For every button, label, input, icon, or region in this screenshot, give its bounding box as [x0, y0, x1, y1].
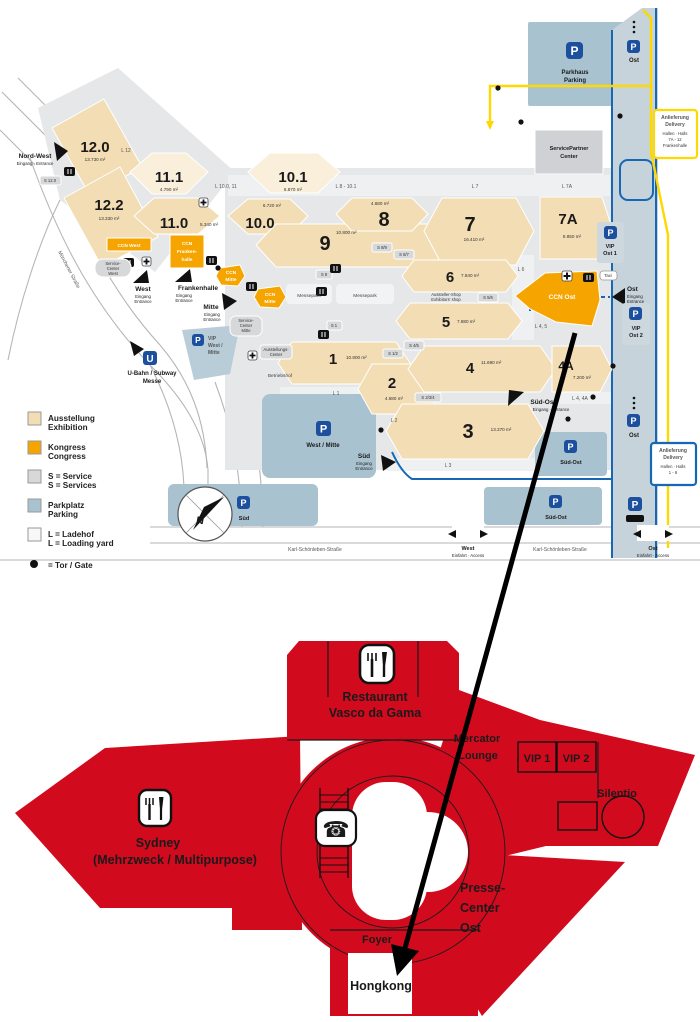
vip-ost-2-sign: P VIP Ost 2 — [622, 303, 650, 345]
loading-swatch — [28, 528, 41, 541]
svg-text:S 1/2: S 1/2 — [388, 351, 398, 356]
ubahn: U U-Bahn / Subway Messe — [127, 341, 177, 385]
ubahn-label-1: U-Bahn / Subway — [127, 371, 177, 377]
svg-text:Entrance: Entrance — [203, 317, 221, 322]
svg-text:P: P — [632, 500, 639, 511]
svg-text:Ost 1: Ost 1 — [603, 251, 617, 257]
ost-parking-bottom: P — [626, 497, 644, 522]
svg-text:Einfahrt · Access: Einfahrt · Access — [637, 553, 669, 558]
legend-exhibition: Ausstellung Exhibition — [28, 412, 95, 432]
ccn-mitte-1-l1: CCN — [226, 270, 237, 276]
taxi-sign: Taxi — [600, 271, 617, 280]
legend: Ausstellung Exhibition Kongress Congress… — [28, 412, 114, 570]
room-restaurant-label-2: Vasco da Gama — [329, 706, 422, 720]
svg-text:Taxi: Taxi — [604, 273, 612, 278]
l7a: L 7A — [562, 184, 573, 190]
hall-6-area: 7.840 m² — [461, 273, 480, 278]
ccn-mitte-2-l2: Mitte — [264, 299, 276, 305]
hall-12.0-area: 13.730 m² — [85, 157, 106, 162]
hall-4A-area: 7.200 m² — [573, 375, 592, 380]
svg-text:Ost: Ost — [648, 546, 657, 552]
messepark-2: Messepark — [353, 293, 377, 299]
hall-10.1-label: 10.1 — [278, 169, 307, 186]
room-presse-label-3: Ost — [460, 921, 482, 935]
gate-icon — [30, 560, 38, 568]
svg-text:Nord-West: Nord-West — [19, 153, 53, 160]
room-presse-label-1: Presse- — [460, 881, 505, 895]
hall-7A-area: 8.850 m² — [563, 234, 582, 239]
hall-7-area: 16.410 m² — [464, 237, 485, 242]
svg-text:Süd: Süd — [239, 516, 249, 522]
service-center-mitte: Service- Center Mitte — [230, 316, 262, 336]
svg-text:Entrance: Entrance — [134, 299, 152, 304]
svg-text:S 12.0: S 12.0 — [44, 178, 57, 183]
hall-2-label: 2 — [388, 375, 396, 392]
aussteller-shop-l2: Exhibitors' shop — [431, 297, 461, 302]
room-presse-label-2: Center — [460, 901, 500, 915]
l8: L 8 - 10.1 — [336, 184, 357, 190]
svg-text:Mitte: Mitte — [208, 350, 220, 356]
access-west: West Einfahrt · Access — [448, 525, 488, 558]
hall-12.0-label: 12.0 — [80, 139, 109, 156]
svg-text:Eingang · Entrance: Eingang · Entrance — [17, 161, 54, 166]
hall-4-area: 11.690 m² — [481, 360, 502, 365]
congress-swatch — [28, 441, 41, 454]
svg-text:Einfahrt · Access: Einfahrt · Access — [452, 553, 484, 558]
messepark-1: Messepark — [297, 293, 321, 299]
service-center-west: Service- Center West — [95, 259, 131, 277]
hall-6-label: 6 — [446, 269, 454, 286]
service-point-s56: S 5/6 — [478, 293, 498, 302]
room-sydney-label-1: Sydney — [136, 836, 181, 850]
hall-3-area: 13.370 m² — [491, 427, 512, 432]
svg-text:Congress: Congress — [48, 452, 86, 461]
svg-text:S 6/7: S 6/7 — [399, 252, 409, 257]
hall-8-label: 8 — [378, 209, 389, 231]
room-silentio-circle — [602, 796, 644, 838]
svg-text:Entrance: Entrance — [355, 466, 373, 471]
svg-text:Frankenhalle: Frankenhalle — [178, 285, 218, 292]
svg-text:Parking: Parking — [48, 510, 78, 519]
parking-swatch — [28, 499, 41, 512]
messe-map-image: Münchener Straße Otto-Bärnreuther-Straße… — [0, 0, 700, 1022]
room-small — [558, 802, 597, 830]
hall-4 — [408, 346, 556, 392]
svg-text:Anlieferung: Anlieferung — [659, 448, 687, 454]
svg-text:P: P — [632, 309, 638, 319]
svg-text:P: P — [195, 335, 201, 345]
service-point-s1: S 1 — [327, 321, 342, 330]
hall-3-label: 3 — [462, 421, 473, 443]
ubahn-arrow-icon — [130, 341, 144, 356]
svg-text:1 - 6: 1 - 6 — [669, 470, 678, 475]
svg-text:Parkhaus: Parkhaus — [561, 70, 589, 76]
entrance-west: West Eingang Entrance — [133, 270, 152, 304]
ccn-frankenhalle-l2: Franken- — [177, 249, 198, 255]
svg-text:Ost: Ost — [627, 286, 639, 293]
svg-text:P: P — [567, 442, 573, 452]
street-karl-1: Karl-Schönleben-Straße — [288, 547, 342, 553]
room-foyer-label: Foyer — [362, 934, 393, 946]
svg-text:Anlieferung: Anlieferung — [661, 115, 689, 121]
restaurant-icon — [139, 790, 171, 826]
svg-text:Exhibition: Exhibition — [48, 423, 88, 432]
svg-text:☎: ☎ — [322, 817, 349, 842]
svg-text:S 1: S 1 — [331, 323, 338, 328]
hall-1-area: 10.800 m² — [346, 355, 367, 360]
svg-text:P: P — [630, 416, 636, 426]
svg-text:S = Service: S = Service — [48, 472, 92, 481]
svg-text:Delivery: Delivery — [663, 455, 683, 461]
room-sydney-label-2: (Mehrzweck / Multipurpose) — [93, 853, 257, 867]
l44a: L 4, 4A — [572, 396, 588, 402]
l6: L 6 — [518, 267, 525, 273]
service-swatch — [28, 470, 41, 483]
hall-12.2-label: 12.2 — [94, 197, 123, 214]
svg-text:Frankenhalle: Frankenhalle — [663, 143, 688, 148]
phone-icon: ☎ — [316, 810, 356, 846]
svg-text:West: West — [108, 271, 118, 276]
l3: L 3 — [445, 463, 452, 469]
entrance-arrow-icon — [133, 270, 149, 283]
svg-text:Süd: Süd — [358, 453, 370, 460]
l12: L 12 — [121, 148, 131, 154]
ausstellungs-center: Ausstellungs- Center — [260, 345, 292, 359]
hall-7 — [424, 198, 534, 265]
svg-text:L = Ladehof: L = Ladehof — [48, 530, 94, 539]
svg-text:P: P — [607, 228, 613, 238]
hall-11.0-label: 11.0 — [160, 215, 188, 232]
l45: L 4, 5 — [535, 324, 548, 330]
svg-text:S = Services: S = Services — [48, 481, 97, 490]
suedost-lower-lot — [484, 487, 602, 525]
l2: L 2 — [391, 418, 398, 424]
svg-text:N: N — [196, 515, 205, 527]
exhibition-swatch — [28, 412, 41, 425]
svg-text:VIP: VIP — [606, 244, 615, 250]
legend-loading-yard: L = Ladehof L = Loading yard — [28, 528, 114, 548]
service-point-s67: S 6/7 — [394, 250, 414, 259]
service-point-s234: S 2/3/4 — [415, 393, 441, 402]
svg-text:S 5/6: S 5/6 — [483, 295, 493, 300]
room-mercator-label-2: Lounge — [458, 750, 498, 762]
service-point-s45: S 4/5 — [404, 341, 424, 350]
delivery-note-halls-1-6: Anlieferung Delivery Hallen · Halls 1 - … — [651, 443, 696, 485]
svg-text:S 4/5: S 4/5 — [409, 343, 419, 348]
service-point-s9: S 9 — [316, 270, 332, 279]
legend-parking: Parkplatz Parking — [28, 499, 84, 519]
hall-6 — [402, 260, 518, 292]
svg-text:Hallen · Halls: Hallen · Halls — [661, 464, 686, 469]
hall-2-area: 4.680 m² — [385, 396, 404, 401]
svg-text:Ost 2: Ost 2 — [629, 333, 643, 339]
svg-text:S 8/9: S 8/9 — [377, 245, 387, 250]
svg-text:West / Mitte: West / Mitte — [306, 443, 340, 449]
compass-icon: N — [178, 487, 232, 541]
svg-text:Mitte: Mitte — [241, 328, 251, 333]
l10: L 10.0, 11 — [215, 184, 237, 190]
svg-text:P: P — [320, 424, 327, 436]
svg-text:West: West — [135, 286, 151, 293]
svg-text:S 2/3/4: S 2/3/4 — [421, 395, 435, 400]
hall-12.2-area: 13.330 m² — [99, 216, 120, 221]
servicepartner-l2: Center — [560, 154, 578, 160]
service-point-s12b: S 1/2 — [383, 349, 403, 358]
svg-text:7A - 12: 7A - 12 — [668, 137, 682, 142]
ccn-frankenhalle-l3: halle — [182, 257, 193, 263]
bus-icon — [626, 515, 644, 522]
svg-text:Ost: Ost — [629, 58, 639, 64]
svg-text:= Tor / Gate: = Tor / Gate — [48, 561, 93, 570]
hall-8-area: 4.680 m² — [371, 201, 390, 206]
ccn-mitte-1-l2: Mitte — [225, 277, 237, 283]
vip-ost-1-sign: P VIP Ost 1 — [597, 222, 624, 263]
hall-10.0-area: 6.720 m² — [263, 203, 282, 208]
svg-text:VIP: VIP — [632, 326, 641, 332]
hall-10.0-label: 10.0 — [245, 215, 274, 232]
l7: L 7 — [472, 184, 479, 190]
svg-text:Delivery: Delivery — [665, 122, 685, 128]
entrance-frankenhalle: Frankenhalle Eingang Entrance — [175, 269, 218, 303]
room-silentio-label: Silentio — [597, 788, 637, 800]
svg-text:Hallen · Halls: Hallen · Halls — [663, 131, 688, 136]
svg-text:Süd-Ost: Süd-Ost — [560, 460, 582, 466]
svg-text:Süd-Ost: Süd-Ost — [545, 515, 567, 521]
svg-text:P: P — [552, 497, 558, 507]
hall-4-label: 4 — [466, 360, 475, 377]
svg-text:S 9: S 9 — [321, 272, 328, 277]
messe-map-page: Münchener Straße Otto-Bärnreuther-Straße… — [0, 0, 700, 1022]
svg-text:VIP: VIP — [208, 336, 217, 342]
room-restaurant-label-1: Restaurant — [342, 690, 408, 704]
legend-congress: Kongress Congress — [28, 441, 86, 461]
hall-9-label: 9 — [319, 233, 330, 255]
svg-text:Ausstellung: Ausstellung — [48, 414, 95, 423]
svg-text:L = Loading yard: L = Loading yard — [48, 539, 114, 548]
legend-service: S = Service S = Services — [28, 470, 97, 490]
svg-text:P: P — [630, 42, 636, 52]
svg-text:Center: Center — [270, 352, 283, 357]
hall-1-label: 1 — [329, 351, 337, 368]
ubahn-label-2: Messe — [143, 379, 162, 385]
svg-text:U: U — [146, 354, 153, 365]
svg-text:Mitte: Mitte — [203, 304, 219, 311]
room-hongkong-label: Hongkong — [350, 979, 412, 993]
ccn-ost-label: CCN Ost — [549, 294, 577, 301]
svg-text:Parkplatz: Parkplatz — [48, 501, 84, 510]
street-karl-2: Karl-Schönleben-Straße — [533, 547, 587, 553]
ccn-mitte-2-l1: CCN — [265, 292, 276, 298]
svg-text:West: West — [461, 546, 474, 552]
delivery-note-halls-7a-12: Anlieferung Delivery Hallen · Halls 7A -… — [654, 110, 697, 158]
legend-gate: = Tor / Gate — [30, 560, 93, 570]
servicepartner-l1: ServicePartner — [550, 146, 590, 152]
ccn-west-label: CCN West — [117, 243, 141, 249]
hall-7-label: 7 — [464, 214, 475, 236]
restaurant-icon — [360, 645, 394, 683]
hall-11.0-area: 5.340 m² — [200, 222, 219, 227]
hall-9-area: 10.800 m² — [336, 230, 357, 235]
hall-11.1-label: 11.1 — [155, 169, 183, 186]
svg-text:P: P — [570, 44, 578, 58]
entrance-arrow-icon — [175, 269, 192, 282]
hall-5-area: 7.880 m² — [457, 319, 476, 324]
svg-text:Entrance: Entrance — [175, 298, 193, 303]
hall-5-label: 5 — [442, 314, 450, 331]
wing-sydney — [15, 736, 302, 930]
svg-text:Kongress: Kongress — [48, 443, 86, 452]
hall-11.1-area: 4.790 m² — [160, 187, 179, 192]
room-vip2-label: VIP 2 — [563, 753, 590, 765]
service-point-s89: S 8/9 — [372, 243, 392, 252]
parkhaus-lot — [528, 22, 625, 106]
l1: L 1 — [333, 391, 340, 397]
svg-text:Ost: Ost — [629, 433, 639, 439]
servicepartner-center-box — [535, 130, 603, 174]
svg-text:West /: West / — [208, 343, 223, 349]
floor-plan: ☎ Restaurant Vasco da Gama Mercator Loun… — [15, 641, 695, 1016]
street-muenchener: Münchener Straße — [56, 250, 81, 290]
svg-text:P: P — [240, 498, 246, 508]
betriebshof: Betriebshof — [268, 373, 293, 379]
hall-7A-label: 7A — [558, 211, 577, 228]
ccn-frankenhalle-l1: CCN — [182, 241, 193, 247]
service-point-s12: S 12.0 — [40, 176, 61, 185]
svg-text:Parking: Parking — [564, 78, 586, 84]
room-vip1-label: VIP 1 — [524, 753, 551, 765]
hall-10.1-area: 6.870 m² — [284, 187, 303, 192]
